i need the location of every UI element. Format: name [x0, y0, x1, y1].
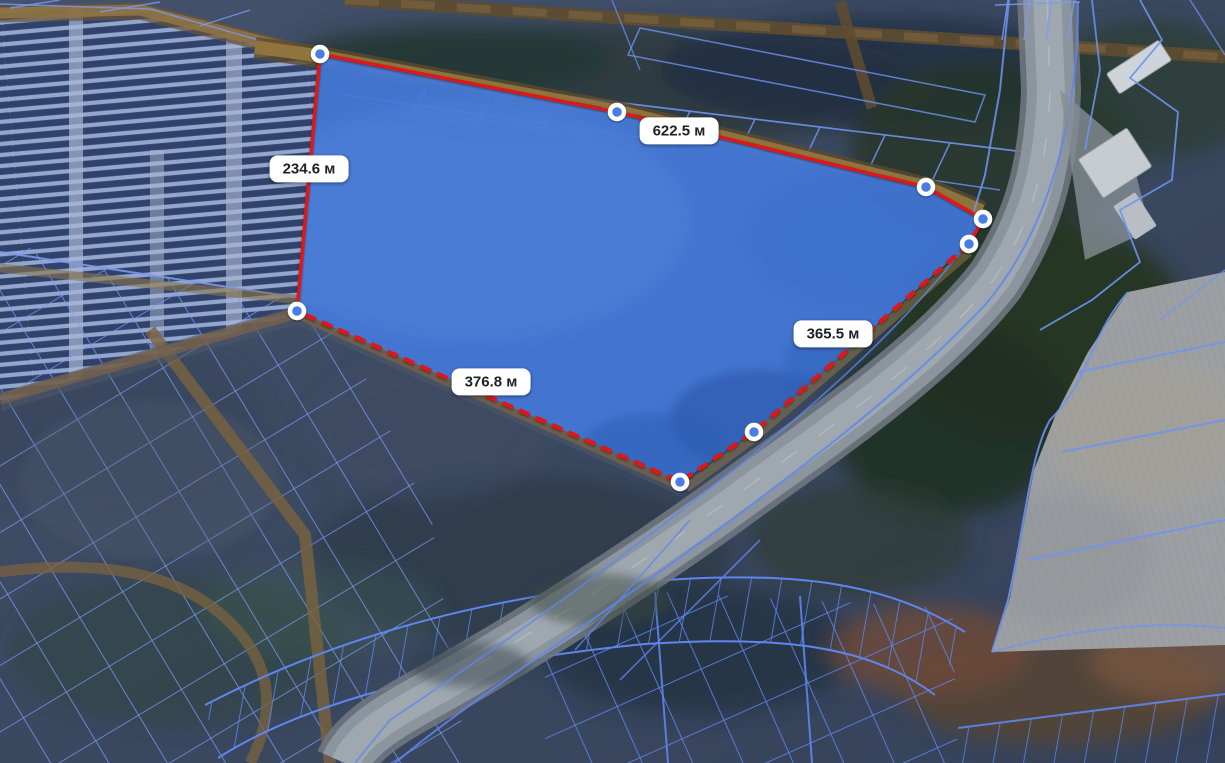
map-canvas[interactable]: 622.5 м234.6 м376.8 м365.5 м [0, 0, 1225, 763]
vertex-handle[interactable] [747, 425, 761, 439]
vertex-handle[interactable] [919, 180, 933, 194]
vertex-handle[interactable] [673, 475, 687, 489]
vertex-handle[interactable] [313, 47, 327, 61]
vertex-handle[interactable] [610, 105, 624, 119]
satellite-map [0, 0, 1225, 763]
vertex-handle[interactable] [976, 212, 990, 226]
vertex-handle[interactable] [962, 237, 976, 251]
vertex-handle[interactable] [290, 304, 304, 318]
